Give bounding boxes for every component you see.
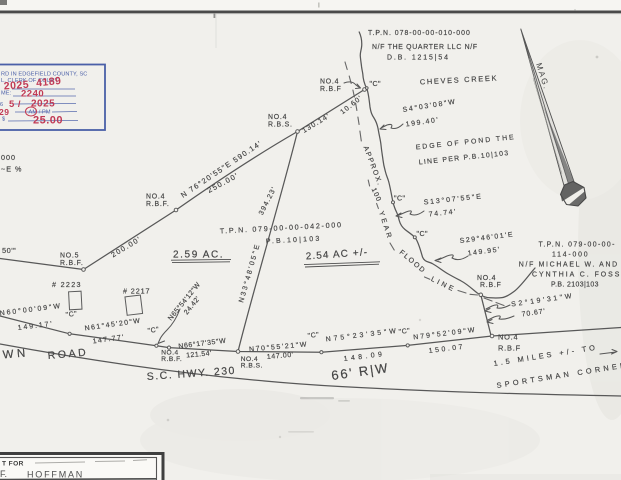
svg-text:50'": 50'" <box>2 246 16 255</box>
svg-text:NO.4: NO.4 <box>498 333 518 342</box>
svg-text:2.59 AC.: 2.59 AC. <box>173 250 224 261</box>
svg-text:R.B.S.: R.B.S. <box>268 122 293 129</box>
svg-text:D.B. 1215|54: D.B. 1215|54 <box>387 55 450 62</box>
svg-text:HOFFMAN: HOFFMAN <box>27 470 84 480</box>
svg-text:29: 29 <box>0 107 9 117</box>
svg-text:NO.4: NO.4 <box>320 79 339 86</box>
svg-text:"C": "C" <box>417 231 429 238</box>
svg-text:R.B.F: R.B.F <box>320 86 342 93</box>
svg-text:NO.4: NO.4 <box>268 114 287 121</box>
svg-text:# 2217: # 2217 <box>123 287 150 296</box>
svg-text:# 2223: # 2223 <box>52 280 82 289</box>
svg-text:R.B.F.: R.B.F. <box>146 201 170 208</box>
svg-text:T FOR: T FOR <box>2 461 24 468</box>
svg-text:114-000: 114-000 <box>552 252 589 259</box>
svg-text:CYNTHIA C. FOSS: CYNTHIA C. FOSS <box>532 272 621 279</box>
svg-text:000: 000 <box>1 153 16 162</box>
svg-text:R.B.F.: R.B.F. <box>60 260 84 267</box>
svg-text:"C": "C" <box>307 332 319 340</box>
svg-text:R.B.S.: R.B.S. <box>241 363 263 370</box>
svg-text:P.B. 2103|103: P.B. 2103|103 <box>551 282 599 289</box>
svg-text:R.B.F: R.B.F <box>498 344 521 353</box>
svg-text:T.P.N. 078-00-00-010-000: T.P.N. 078-00-00-010-000 <box>368 30 471 37</box>
svg-text:NO.5: NO.5 <box>60 253 79 260</box>
svg-text:25.00: 25.00 <box>33 115 63 127</box>
svg-text:"C": "C" <box>394 196 406 203</box>
svg-text:N/F THE QUARTER LLC N/F: N/F THE QUARTER LLC N/F <box>372 44 478 51</box>
svg-text:~E %: ~E % <box>1 165 22 174</box>
svg-text:N/F MICHAEL W. AND: N/F MICHAEL W. AND <box>519 262 619 269</box>
svg-text:NO.4: NO.4 <box>477 275 496 282</box>
svg-text:R.B.F: R.B.F <box>480 282 502 289</box>
svg-text:NO.4: NO.4 <box>146 194 165 201</box>
svg-text:R.B.F.: R.B.F. <box>161 356 182 363</box>
svg-text:"C": "C" <box>370 81 382 88</box>
svg-text:"C": "C" <box>65 311 77 319</box>
svg-text:"C": "C" <box>398 328 410 336</box>
svg-text:5 /: 5 / <box>9 99 21 110</box>
svg-text:T.P.N. 079-00-00-: T.P.N. 079-00-00- <box>539 242 616 249</box>
svg-text:WN: WN <box>2 347 29 361</box>
svg-text:F.: F. <box>0 469 7 479</box>
